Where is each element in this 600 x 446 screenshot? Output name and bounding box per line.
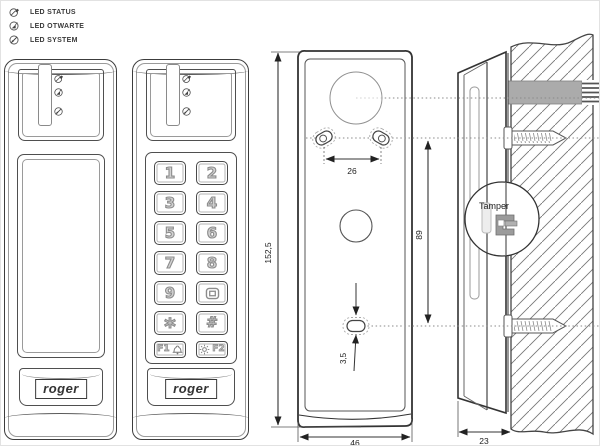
light-icon: [199, 344, 210, 355]
key-2: 2: [196, 161, 228, 185]
tamper-label: Tamper: [479, 201, 509, 211]
led-status-icon: [53, 73, 64, 84]
tamper-switch-arm: [505, 221, 517, 226]
key-0-square: [196, 281, 228, 305]
reader-bottom-seam: [5, 413, 116, 420]
dimension-hole-offset-value: 89: [414, 230, 424, 240]
brand-logo: roger: [165, 379, 217, 399]
dimension-hole-offset: 89: [414, 141, 428, 323]
key-1: 1: [154, 161, 186, 185]
led-otwarte-icon: [8, 20, 20, 32]
key-4: 4: [196, 191, 228, 215]
key-8: 8: [196, 251, 228, 275]
dimension-width-value: 46: [350, 438, 360, 446]
led-status-icon: [181, 73, 192, 84]
side-installation-view: Tamper 23: [458, 34, 600, 446]
key-5: 5: [154, 221, 186, 245]
legend-label-otwarte: LED OTWARTE: [30, 23, 84, 30]
tamper-switch-plunger: [498, 220, 504, 226]
brand-logo: roger: [35, 379, 87, 399]
legend-label-status: LED STATUS: [30, 9, 76, 16]
key-hash: #: [196, 311, 228, 335]
cable-bundle: [508, 81, 582, 104]
reader-light-guide-slot: [38, 64, 52, 126]
tamper-callout: Tamper: [465, 182, 539, 256]
dimension-height-value: 152,5: [263, 242, 273, 264]
key-3: 3: [154, 191, 186, 215]
cable-hole: [330, 72, 382, 124]
installation-diagram: LED STATUS LED OTWARTE LED SYSTEM: [0, 0, 600, 446]
led-system-icon: [181, 106, 192, 117]
key-star: *: [154, 311, 186, 335]
keypad-led-icons: [181, 73, 193, 117]
brand-logo-text: roger: [43, 381, 79, 396]
led-legend: LED STATUS LED OTWARTE LED SYSTEM: [8, 5, 84, 47]
legend-item-system: LED SYSTEM: [8, 33, 84, 47]
key-f1: F1: [154, 341, 186, 358]
key-7: 7: [154, 251, 186, 275]
reader-led-icons: [53, 73, 65, 117]
bell-icon: [172, 344, 183, 355]
center-hole: [340, 210, 372, 242]
legend-item-otwarte: LED OTWARTE: [8, 19, 84, 33]
led-otwarte-icon: [53, 87, 64, 98]
keypad-logo-plate: roger: [147, 368, 235, 406]
led-system-icon: [53, 106, 64, 117]
technical-views: Tamper 23: [256, 21, 600, 446]
keypad: 1 2 3 4 5 6 7 8 9 * # F1 F2: [145, 152, 237, 364]
front-view-keypad-reader: 1 2 3 4 5 6 7 8 9 * # F1 F2: [132, 59, 249, 440]
dimension-hole-spacing-value: 26: [347, 166, 357, 176]
legend-label-system: LED SYSTEM: [30, 37, 78, 44]
keypad-light-guide-slot: [166, 64, 180, 126]
reader-logo-plate: roger: [19, 368, 103, 406]
front-view-reader: roger: [4, 59, 117, 440]
reader-front-panel: [17, 154, 105, 358]
led-system-icon: [8, 34, 20, 46]
legend-item-status: LED STATUS: [8, 5, 84, 19]
led-otwarte-icon: [181, 87, 192, 98]
led-status-icon: [8, 6, 20, 18]
brand-logo-text: roger: [173, 381, 209, 396]
dimension-slot-height-value: 3,5: [339, 352, 348, 364]
key-6: 6: [196, 221, 228, 245]
square-icon: [205, 287, 220, 300]
key-9: 9: [154, 281, 186, 305]
dimension-depth-value: 23: [479, 436, 489, 446]
key-f2: F2: [196, 341, 228, 358]
